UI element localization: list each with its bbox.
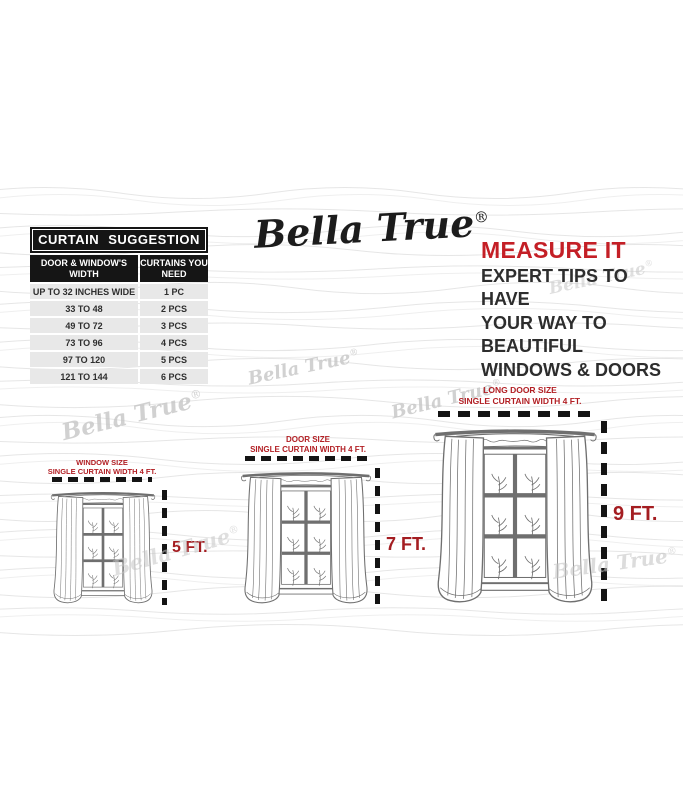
table-title: CURTAIN SUGGESTION bbox=[32, 229, 206, 251]
size-name-door: DOOR SIZE bbox=[258, 435, 358, 444]
size-subtitle: SINGLE CURTAIN WIDTH 4 FT. bbox=[38, 468, 166, 477]
table-row: 97 TO 120 5 PCS bbox=[30, 352, 208, 367]
table-row: UP TO 32 INCHES WIDE 1 PC bbox=[30, 284, 208, 299]
brand-logo-text: Bella True bbox=[253, 200, 475, 256]
width-guide-dashes bbox=[438, 411, 598, 417]
height-guide-dashes bbox=[375, 468, 380, 607]
table-row: 49 TO 72 3 PCS bbox=[30, 318, 208, 333]
measure-line: YOUR WAY TO BEAUTIFUL bbox=[481, 312, 681, 358]
width-cell: 97 TO 120 bbox=[30, 352, 138, 367]
size-subtitle: SINGLE CURTAIN WIDTH 4 FT. bbox=[243, 445, 373, 454]
table-row: 121 TO 144 6 PCS bbox=[30, 369, 208, 384]
registered-trademark-icon: ® bbox=[473, 208, 489, 227]
brand-watermark: Bella True® bbox=[59, 385, 206, 446]
measure-tip-block: MEASURE IT EXPERT TIPS TO HAVE YOUR WAY … bbox=[481, 237, 681, 382]
curtain-suggestion-table: CURTAIN SUGGESTION DOOR & WINDOW'S WIDTH… bbox=[30, 227, 208, 384]
measure-line: EXPERT TIPS TO HAVE bbox=[481, 265, 681, 311]
width-cell: UP TO 32 INCHES WIDE bbox=[30, 284, 138, 299]
column-header-curtains: CURTAINS YOU NEED bbox=[140, 255, 208, 282]
height-guide-dashes bbox=[601, 421, 607, 606]
column-header-width: DOOR & WINDOW'S WIDTH bbox=[30, 255, 138, 282]
width-guide-dashes bbox=[245, 456, 371, 461]
window-illustration-large bbox=[432, 420, 598, 610]
brand-watermark: Bella True® bbox=[246, 345, 361, 389]
width-cell: 49 TO 72 bbox=[30, 318, 138, 333]
size-subtitle: SINGLE CURTAIN WIDTH 4 FT. bbox=[456, 397, 584, 407]
size-name-long-door: LONG DOOR SIZE bbox=[468, 386, 572, 396]
height-label-9ft: 9 FT. bbox=[613, 503, 657, 526]
height-label-7ft: 7 FT. bbox=[386, 534, 426, 555]
qty-cell: 6 PCS bbox=[140, 369, 208, 384]
width-cell: 73 TO 96 bbox=[30, 335, 138, 350]
measure-heading: MEASURE IT bbox=[481, 237, 681, 264]
qty-cell: 1 PC bbox=[140, 284, 208, 299]
brand-logo: Bella True® bbox=[253, 202, 440, 257]
table-row: 73 TO 96 4 PCS bbox=[30, 335, 208, 350]
qty-cell: 5 PCS bbox=[140, 352, 208, 367]
table-header-row: DOOR & WINDOW'S WIDTH CURTAINS YOU NEED bbox=[30, 255, 208, 282]
infographic-canvas: Bella True® Bella True® Bella True® Bell… bbox=[0, 0, 683, 800]
table-title-bar: CURTAIN SUGGESTION bbox=[30, 227, 208, 253]
qty-cell: 4 PCS bbox=[140, 335, 208, 350]
width-cell: 121 TO 144 bbox=[30, 369, 138, 384]
measure-line: WINDOWS & DOORS bbox=[481, 359, 681, 382]
qty-cell: 3 PCS bbox=[140, 318, 208, 333]
width-guide-dashes bbox=[52, 477, 152, 482]
width-cell: 33 TO 48 bbox=[30, 301, 138, 316]
qty-cell: 2 PCS bbox=[140, 301, 208, 316]
window-illustration-medium bbox=[240, 465, 372, 609]
table-row: 33 TO 48 2 PCS bbox=[30, 301, 208, 316]
